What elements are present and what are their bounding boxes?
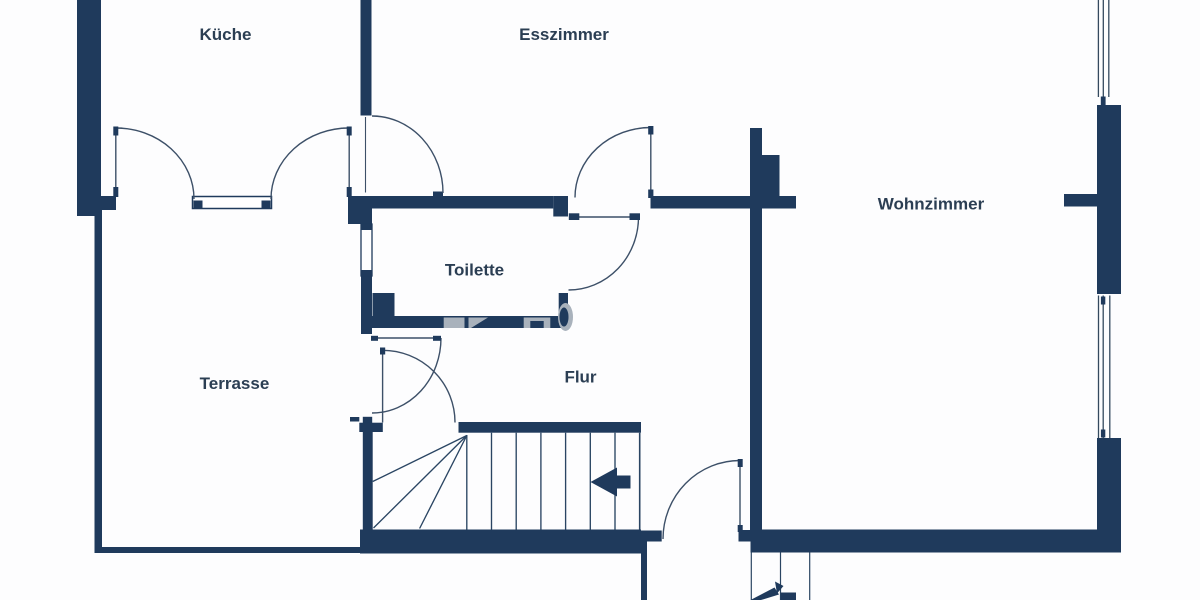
svg-text:Küche: Küche <box>200 25 252 44</box>
svg-text:Flur: Flur <box>564 368 596 387</box>
svg-text:Toilette: Toilette <box>445 261 504 280</box>
svg-text:Wohnzimmer: Wohnzimmer <box>878 195 985 214</box>
svg-text:Esszimmer: Esszimmer <box>519 25 609 44</box>
svg-text:Terrasse: Terrasse <box>200 374 270 393</box>
